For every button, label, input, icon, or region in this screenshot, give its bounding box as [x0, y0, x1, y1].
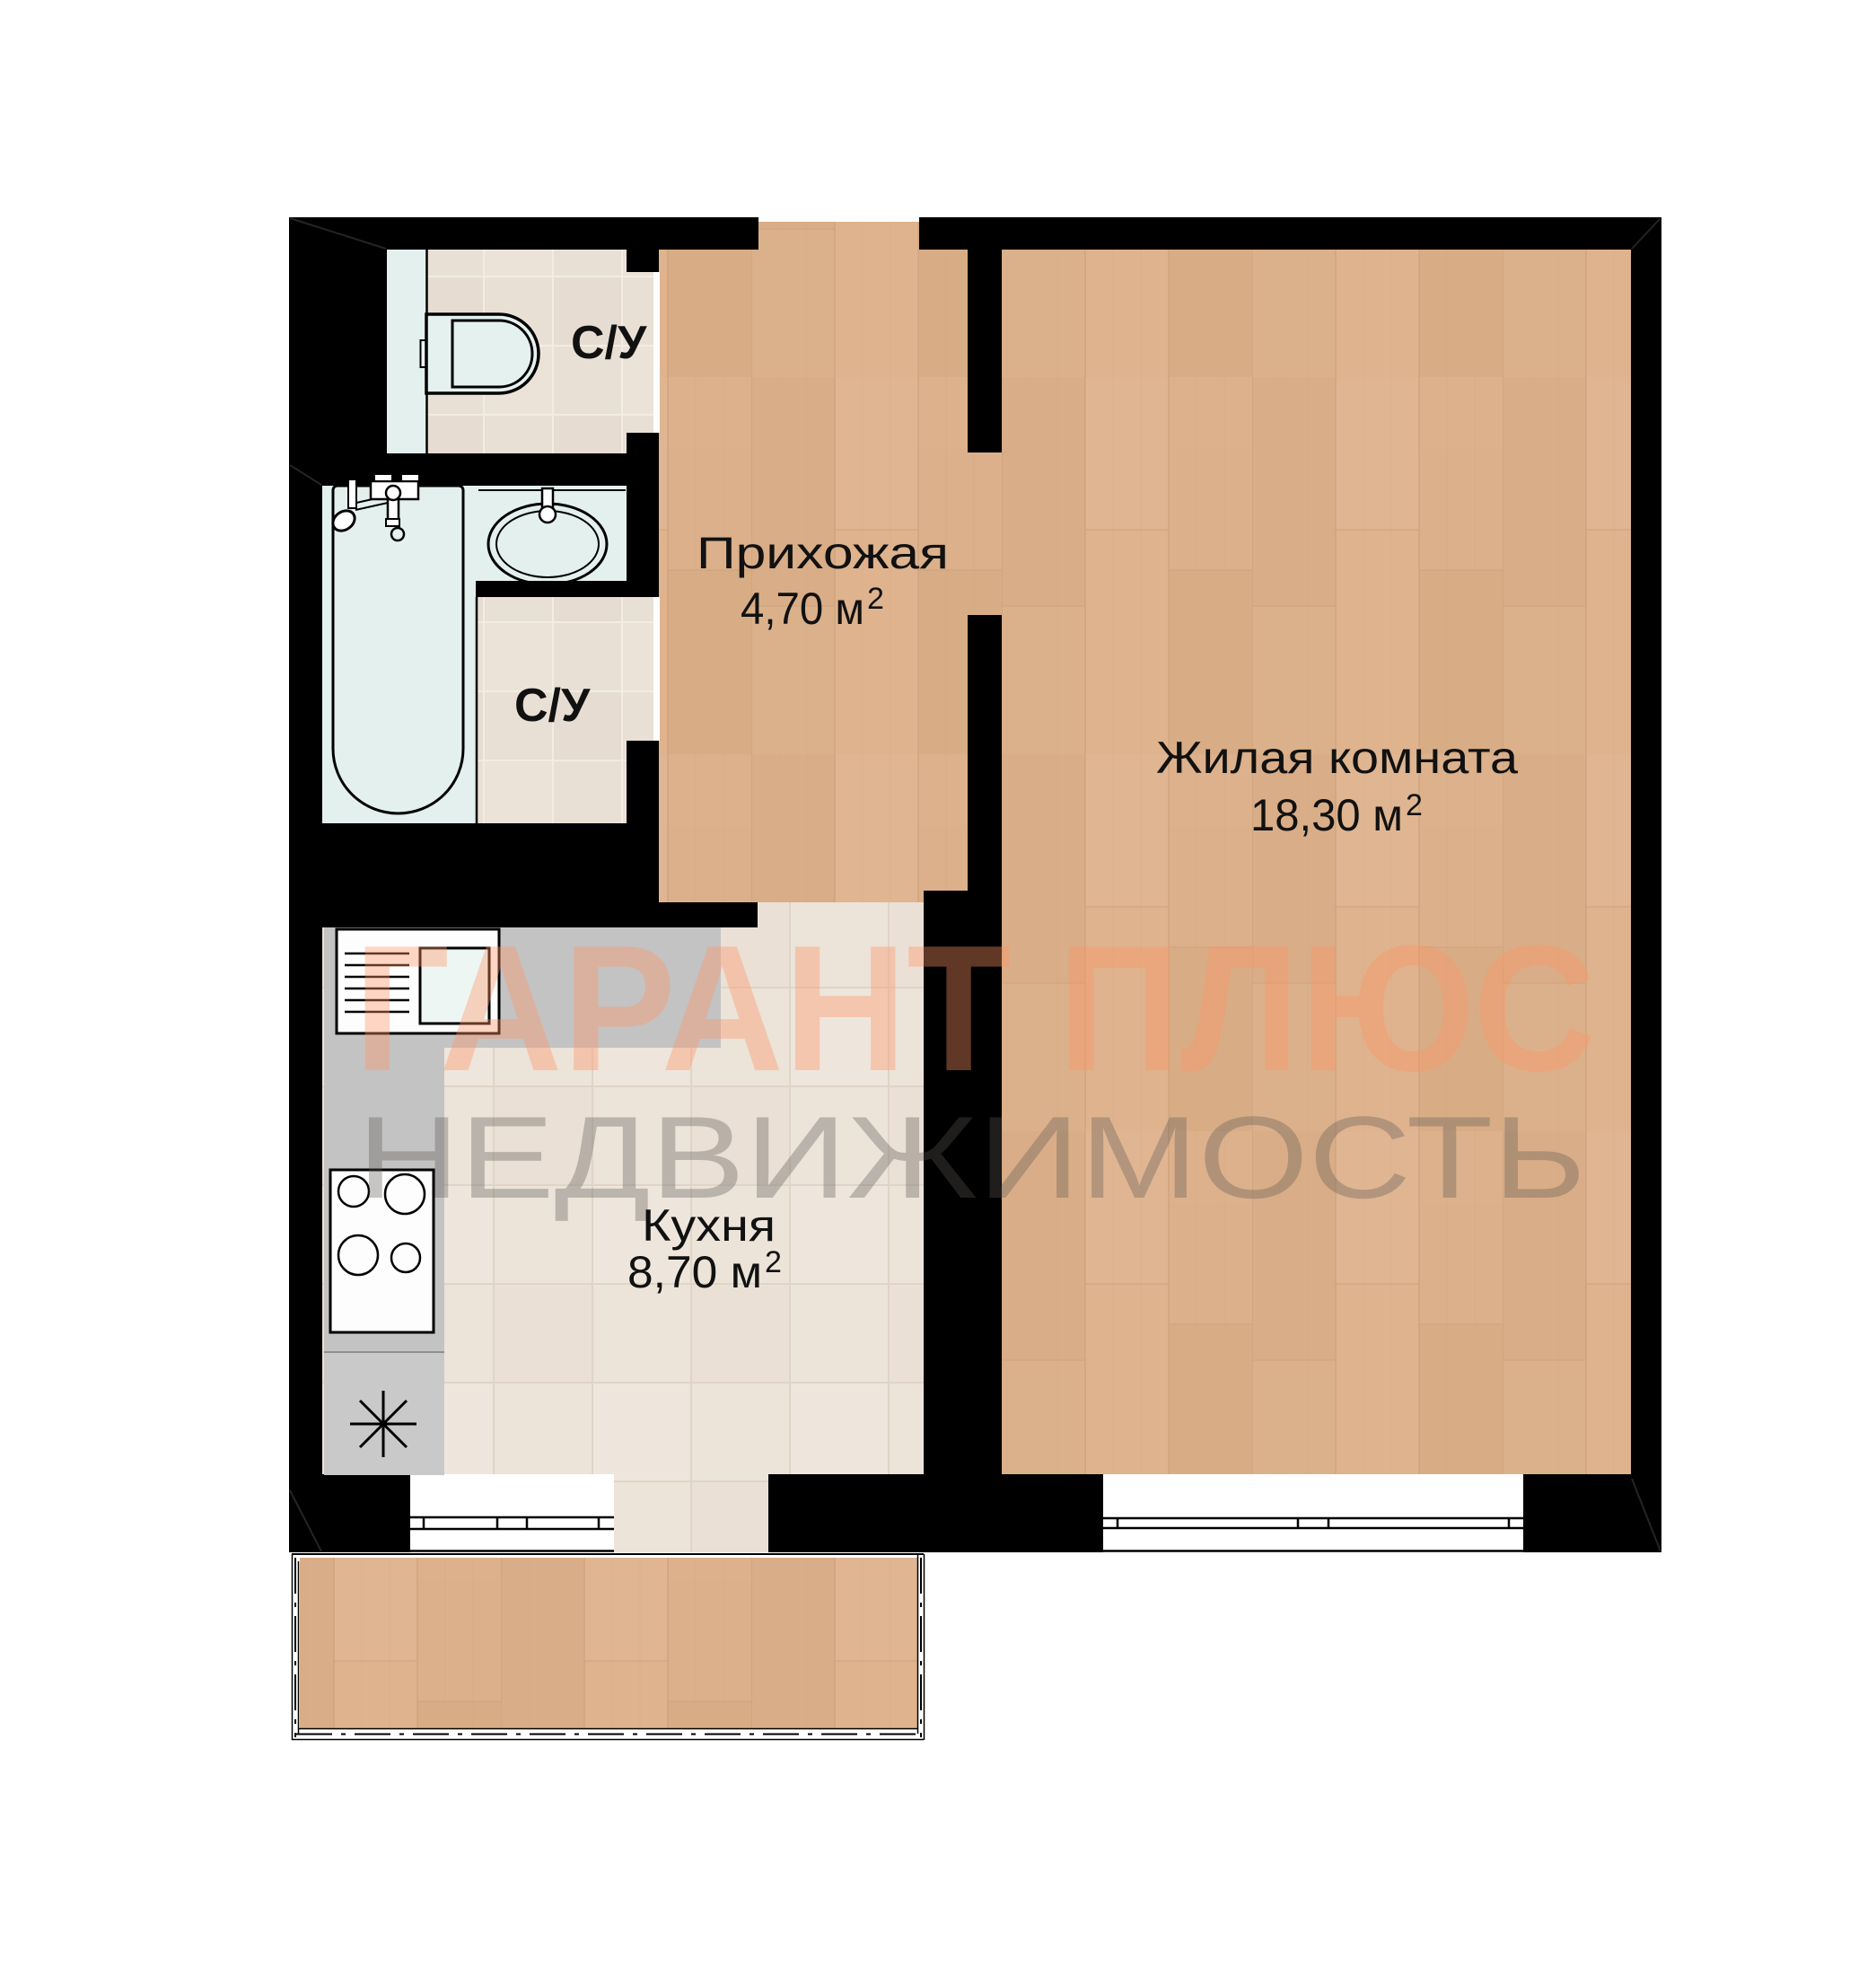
svg-text:С/У: С/У: [514, 680, 591, 732]
svg-text:ГАРАНТ ПЛЮС: ГАРАНТ ПЛЮС: [354, 909, 1596, 1109]
svg-text:Прихожая: Прихожая: [697, 528, 949, 578]
svg-text:2: 2: [765, 1245, 782, 1279]
svg-text:Кухня: Кухня: [642, 1200, 776, 1251]
svg-text:18,30 м: 18,30 м: [1250, 790, 1403, 840]
svg-text:2: 2: [1406, 788, 1423, 822]
svg-text:8,70 м: 8,70 м: [627, 1247, 762, 1297]
svg-text:2: 2: [867, 582, 884, 616]
svg-text:НЕДВИЖИМОСТЬ: НЕДВИЖИМОСТЬ: [357, 1092, 1586, 1223]
svg-text:С/У: С/У: [571, 317, 647, 369]
svg-text:4,70 м: 4,70 м: [741, 584, 864, 634]
svg-text:Жилая комната: Жилая комната: [1156, 733, 1518, 783]
